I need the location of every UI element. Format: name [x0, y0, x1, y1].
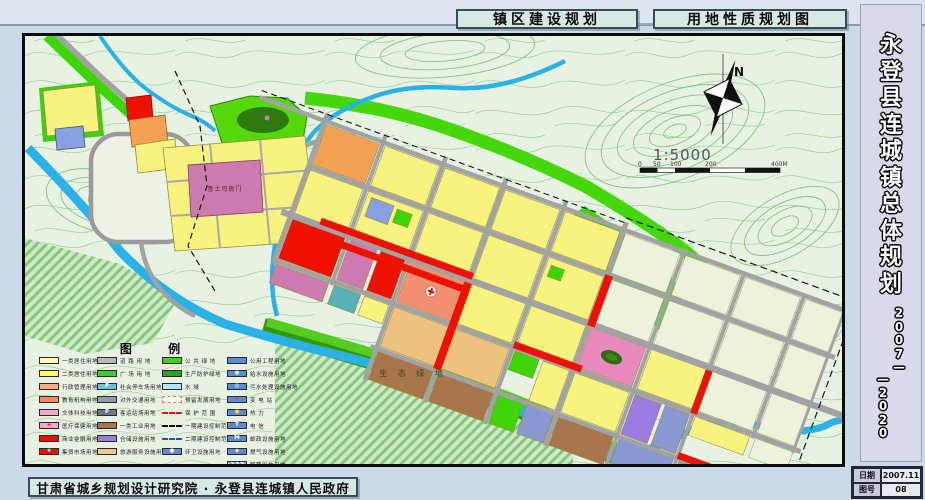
legend-label: 电 信	[250, 422, 264, 430]
legend-swatch: ●	[162, 448, 182, 455]
legend-label: 客运站场用地	[120, 409, 156, 417]
legend-swatch	[162, 412, 182, 414]
legend-item: 预留发展用地	[162, 395, 221, 404]
sheet-meta-table: 日期 2007.11 图号 08	[851, 466, 923, 499]
scale-tick: 200	[705, 161, 717, 168]
legend-item: +医疗保健用地	[39, 421, 98, 430]
legend-swatch	[162, 370, 182, 377]
plan-period-start: 2007—	[892, 307, 906, 375]
legend-label: 燃气设施用地	[250, 448, 286, 456]
credit-box: 甘肃省城乡规划设计研究院 · 永登县连城镇人民政府	[28, 477, 358, 497]
plan-title-char: 县	[861, 86, 921, 113]
plan-title-char: 连	[861, 113, 921, 140]
scale-tick: 100	[670, 161, 682, 168]
legend-label: 一类工业用地	[120, 422, 156, 430]
legend-item: 对外交通用地	[97, 395, 156, 404]
legend-label: 公用工程用地	[250, 357, 286, 365]
legend-swatch	[227, 357, 247, 364]
legend-item: 二类居住用地	[39, 369, 98, 378]
plan-title-char: 规	[861, 245, 921, 272]
legend-item: M邮政设施用地	[227, 434, 286, 443]
date-label: 日期	[853, 468, 881, 483]
plan-title-char: 体	[861, 219, 921, 246]
plan-period-char: 7	[892, 348, 906, 362]
legend-swatch	[97, 448, 117, 455]
legend-item: P社会停车场用地	[97, 382, 162, 391]
legend-title: 图 例	[33, 340, 283, 357]
scale-tick: 400M	[771, 161, 788, 168]
plan-period-char: 2	[876, 387, 890, 401]
legend-swatch	[97, 396, 117, 403]
scale-tick: 50	[653, 161, 661, 168]
legend-item: 道 路 用 地	[97, 356, 151, 365]
legend-label: 殡葬设施用地	[250, 461, 286, 468]
legend-item: +变 电 站	[227, 395, 273, 404]
legend-swatch	[39, 383, 59, 390]
legend-label: 变 电 站	[250, 396, 273, 404]
legend-swatch: ★	[39, 448, 59, 455]
legend-item: 商业金融用地	[39, 434, 98, 443]
legend-swatch	[97, 422, 117, 429]
plan-period-char: 2	[892, 307, 906, 321]
legend-item: 教育机构用地	[39, 395, 98, 404]
legend-label: 生产防护绿地	[185, 370, 221, 378]
legend-label: 保 护 范 围	[185, 409, 216, 417]
legend-item: 一期建设控制范围	[162, 421, 233, 430]
legend-label: 对外交通用地	[120, 396, 156, 404]
heritage-site-label: 鲁土司衙门	[207, 185, 242, 193]
park-hill	[237, 107, 289, 133]
park-pavilion	[265, 116, 270, 121]
plan-period-char: —	[876, 373, 890, 387]
sheet-number-label: 图号	[853, 483, 881, 498]
legend-item: 保 护 范 围	[162, 408, 216, 417]
credit-text: 甘肃省城乡规划设计研究院 · 永登县连城镇人民政府	[36, 478, 349, 497]
sheet-number-value: 08	[881, 483, 921, 498]
legend-label: 社会停车场用地	[120, 383, 162, 391]
legend-label: 广 场 用 地	[120, 370, 151, 378]
legend-label: 行政管理用地	[62, 383, 98, 391]
legend-swatch: T	[227, 422, 247, 429]
legend-swatch: M	[227, 435, 247, 442]
legend-swatch	[162, 383, 182, 390]
legend-item: ◆燃气设施用地	[227, 447, 286, 456]
legend-swatch: P	[97, 383, 117, 390]
legend-label: 二期建设控制范围	[185, 435, 233, 443]
north-label: N	[734, 65, 744, 79]
legend-item: P客运站场用地	[97, 408, 156, 417]
plan-period-char: 2	[876, 414, 890, 428]
title-block-sidebar: 永登县连城镇总体规划 2007— —2020	[860, 4, 922, 462]
legend-swatch	[162, 396, 182, 403]
legend-label: 一期建设控制范围	[185, 422, 233, 430]
legend-label: 环卫设施用地	[185, 448, 221, 456]
legend-label: 热 力	[250, 409, 264, 417]
legend-label: 道 路 用 地	[120, 357, 151, 365]
legend-item: ◎污水处理设施用地	[227, 382, 298, 391]
legend: 图 例 一类居住用地二类居住用地行政管理用地教育机构用地文体科技用地+医疗保健用…	[33, 340, 313, 466]
legend-item: 水 域	[162, 382, 199, 391]
legend-item: ●热 力	[227, 408, 264, 417]
legend-item: 殡葬设施用地	[227, 460, 286, 467]
plan-period-end: —2020	[876, 373, 890, 441]
legend-swatch: ◆	[227, 448, 247, 455]
legend-label: 仓储设施用地	[120, 435, 156, 443]
legend-label: 邮政设施用地	[250, 435, 286, 443]
legend-label: 预留发展用地	[185, 396, 221, 404]
legend-swatch	[162, 438, 182, 440]
map-panel: 鲁土司衙门	[22, 33, 845, 467]
legend-item: 公 共 绿 地	[162, 356, 216, 365]
legend-item: 广 场 用 地	[97, 369, 151, 378]
sheet-title: 用地性质规划图	[687, 9, 813, 29]
legend-label: 医疗保健用地	[62, 422, 98, 430]
legend-label: 公 共 绿 地	[185, 357, 216, 365]
legend-swatch: +	[39, 422, 59, 429]
legend-item: ●给水设施用地	[227, 369, 286, 378]
legend-item: ★集贸市场用地	[39, 447, 98, 456]
legend-swatch: +	[227, 396, 247, 403]
legend-swatch	[39, 435, 59, 442]
plan-title-vertical: 永登县连城镇总体规划	[861, 33, 921, 298]
legend-label: 二类居住用地	[62, 370, 98, 378]
plan-title-char: 永	[861, 33, 921, 60]
legend-swatch	[97, 435, 117, 442]
legend-swatch: P	[97, 409, 117, 416]
sheet-title-box: 用地性质规划图	[653, 9, 847, 29]
date-value: 2007.11	[881, 468, 921, 483]
plan-title-char: 总	[861, 192, 921, 219]
legend-swatch	[39, 357, 59, 364]
plan-period-char: —	[892, 361, 906, 375]
legend-item: 二期建设控制范围	[162, 434, 233, 443]
plan-period-char: 0	[892, 321, 906, 335]
legend-swatch	[227, 461, 247, 467]
legend-item: 一类工业用地	[97, 421, 156, 430]
legend-item: 文体科技用地	[39, 408, 98, 417]
legend-item: 旅游服务设施用地	[97, 447, 168, 456]
legend-label: 文体科技用地	[62, 409, 98, 417]
legend-swatch: ●	[227, 370, 247, 377]
legend-label: 给水设施用地	[250, 370, 286, 378]
legend-label: 教育机构用地	[62, 396, 98, 404]
legend-label: 商业金融用地	[62, 435, 98, 443]
legend-swatch	[39, 370, 59, 377]
legend-swatch	[39, 396, 59, 403]
scale-ratio: 1:5000	[653, 146, 712, 164]
legend-label: 污水处理设施用地	[250, 383, 298, 391]
series-title-box: 镇区建设规划	[456, 9, 638, 29]
legend-swatch	[97, 370, 117, 377]
legend-swatch: ◎	[227, 383, 247, 390]
series-title: 镇区建设规划	[493, 9, 601, 29]
legend-swatch	[97, 357, 117, 364]
legend-item: ●环卫设施用地	[162, 447, 221, 456]
legend-swatch	[162, 357, 182, 364]
legend-swatch	[39, 409, 59, 416]
plan-period-char: 0	[876, 427, 890, 441]
legend-swatch: ●	[227, 409, 247, 416]
legend-label: 集贸市场用地	[62, 448, 98, 456]
plan-period-char: 0	[892, 334, 906, 348]
legend-item: T电 信	[227, 421, 264, 430]
legend-label: 水 域	[185, 383, 199, 391]
plan-title-char: 划	[861, 272, 921, 299]
legend-item: 仓储设施用地	[97, 434, 156, 443]
legend-swatch	[162, 425, 182, 427]
plan-sheet: { "header": { "title_left": "镇区建设规划", "t…	[0, 0, 925, 500]
plan-title-char: 登	[861, 60, 921, 87]
west-parcel-blue	[55, 126, 85, 150]
legend-item: 一类居住用地	[39, 356, 98, 365]
plan-period-char: 0	[876, 400, 890, 414]
legend-item: 行政管理用地	[39, 382, 98, 391]
legend-label: 一类居住用地	[62, 357, 98, 365]
plan-title-char: 城	[861, 139, 921, 166]
scale-tick: 0	[638, 161, 642, 168]
legend-item: 生产防护绿地	[162, 369, 221, 378]
eco-zone-label: 生 态 绿 地	[379, 368, 447, 378]
legend-label: 旅游服务设施用地	[120, 448, 168, 456]
legend-item: 公用工程用地	[227, 356, 286, 365]
plan-title-char: 镇	[861, 166, 921, 193]
